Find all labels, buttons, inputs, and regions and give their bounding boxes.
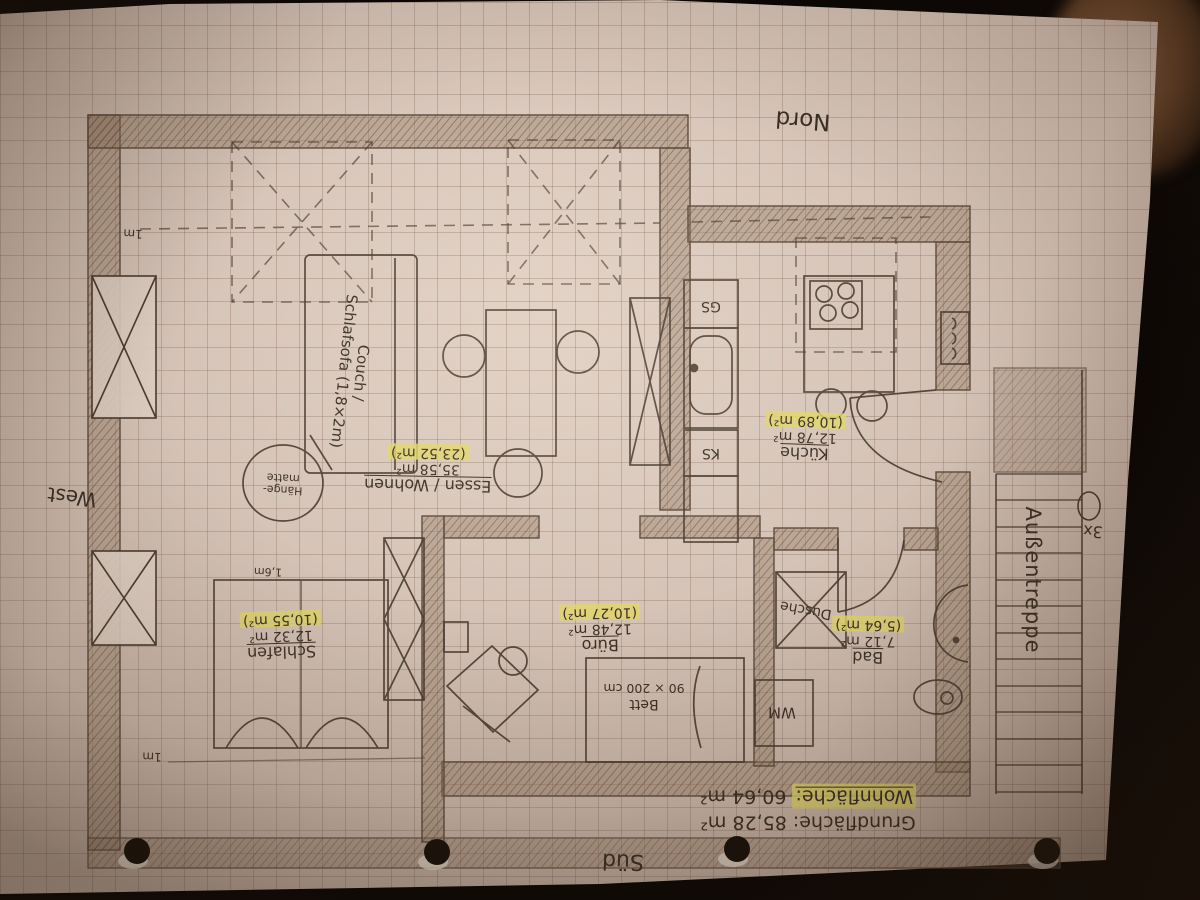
- kitchen-fixtures: [684, 276, 969, 542]
- chair-icon: [443, 335, 485, 377]
- room-area: 7,12 m²: [832, 631, 904, 648]
- dishwasher-label: GS: [701, 297, 721, 313]
- entrance-door-swing-icon: [850, 390, 942, 482]
- room-area-net: (23,52 m²): [388, 443, 469, 460]
- floor-plan-photo: Nord Süd West Essen / Wohnen 35,58 m² (2…: [0, 0, 1200, 900]
- room-area-net: (10,55 m²): [240, 610, 321, 629]
- room-name: Bad: [832, 647, 904, 666]
- wall-office-north-a: [444, 516, 539, 538]
- office-bed-label: Bett 90 × 200 cm: [603, 681, 684, 711]
- dining-table-icon: [486, 310, 556, 456]
- net-area-label: Wohnfläche:: [793, 783, 917, 809]
- washing-machine-label: WM: [768, 703, 796, 720]
- compass-south-label: Süd: [602, 847, 645, 873]
- gross-area-line: Grundfläche: 85,28 m²: [700, 809, 916, 835]
- room-area-net: (10,89 m²): [765, 411, 846, 430]
- exterior-stairs-label: Außentreppe: [1020, 506, 1044, 653]
- loft-outline-left-icon: [232, 142, 372, 302]
- room-label-office: Büro 12,48 m² (10,27 m²): [559, 603, 641, 654]
- fridge-label: KS: [702, 444, 720, 460]
- net-area-value: 60,64 m²: [700, 786, 787, 808]
- room-label-living: Essen / Wohnen 35,58 m² (23,52 m²): [364, 443, 492, 495]
- room-area-net: (10,27 m²): [559, 603, 640, 620]
- scale-line-bottom: [168, 758, 425, 762]
- compass-west-label: West: [46, 483, 98, 511]
- wall-north: [88, 115, 688, 148]
- wall-bath-west: [754, 538, 774, 766]
- punch-hole-icon: [124, 838, 150, 864]
- chair-icon: [557, 331, 599, 373]
- bath-door-swing-icon: [838, 538, 904, 612]
- room-name: Büro: [560, 635, 641, 654]
- roof-height-line-left: [140, 223, 660, 229]
- wardrobe-icon: [384, 538, 424, 700]
- wall-south-outer: [88, 838, 1060, 868]
- range-hood-outline-icon: [796, 238, 896, 352]
- desk-chair-icon: [499, 647, 527, 675]
- desk-icon: [447, 646, 538, 742]
- area-summary: Grundfläche: 85,28 m² Wohnfläche: 60,64 …: [700, 783, 916, 834]
- bed-label: Bett: [603, 695, 684, 711]
- hammock-label: Hänge- matte: [263, 470, 304, 497]
- stove-island-icon: [804, 276, 894, 392]
- hammock-label-line2: matte: [263, 470, 303, 484]
- room-label-bedroom: Schlafen 12,32 m² (10,55 m²): [240, 610, 322, 662]
- wall-east-lower: [936, 472, 970, 772]
- room-label-kitchen: Küche 12,78 m² (10,89 m²): [764, 411, 846, 463]
- stair-landing: [994, 368, 1086, 472]
- punch-hole-icon: [424, 839, 450, 865]
- wall-bedroom-office: [422, 516, 444, 842]
- floor-plan-drawing: [0, 0, 1200, 900]
- stairs-count-note: 3x: [1082, 521, 1103, 541]
- double-bed-icon: [214, 580, 388, 748]
- net-area-line: Wohnfläche: 60,64 m²: [700, 783, 916, 809]
- room-name: Essen / Wohnen: [364, 475, 492, 495]
- side-container-icon: [444, 622, 468, 652]
- wall-office-north-b: [640, 516, 760, 538]
- window-west-bedroom-icon: [92, 551, 156, 645]
- bed-dimensions: 90 × 200 cm: [603, 681, 684, 695]
- wall-bath-north-a: [774, 528, 838, 550]
- wall-kitchen-north: [688, 206, 970, 242]
- compass-north-label: Nord: [775, 105, 832, 135]
- room-area: 12,48 m²: [559, 619, 640, 636]
- wall-living-kitchen: [660, 148, 690, 510]
- gross-area-value: 85,28 m²: [700, 812, 787, 834]
- punch-hole-icon: [1034, 838, 1060, 864]
- scale-mark-top: 1m: [123, 226, 143, 241]
- room-label-bath: Bad 7,12 m² (5,64 m²): [832, 616, 905, 667]
- room-area-net: (5,64 m²): [832, 616, 904, 633]
- scale-mark-bottom: 1m: [142, 749, 162, 763]
- kitchen-sink-icon: [684, 328, 738, 428]
- gross-area-label: Grundfläche:: [793, 812, 916, 834]
- dashed-lines: [140, 140, 930, 352]
- punch-hole-icon: [724, 836, 750, 862]
- loft-outline-center-icon: [508, 140, 620, 284]
- bed-width-note: 1,6m: [254, 564, 283, 577]
- doors: [838, 390, 942, 612]
- wall-bath-north-b: [904, 528, 938, 550]
- window-west-living-icon: [92, 276, 156, 418]
- wall-west: [88, 115, 120, 850]
